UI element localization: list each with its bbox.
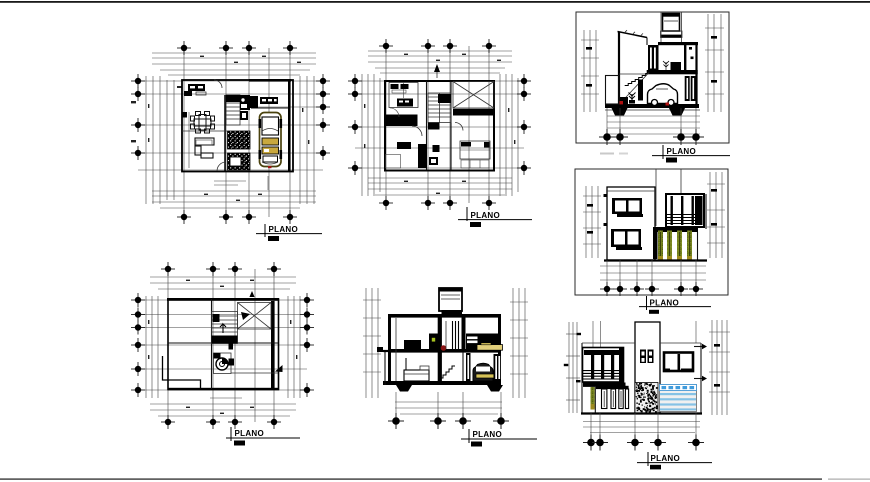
svg-text:PLANO: PLANO	[269, 225, 299, 234]
svg-text:PLANO: PLANO	[235, 429, 265, 438]
svg-text:PLANO: PLANO	[473, 430, 503, 439]
svg-text:PLANO: PLANO	[651, 454, 681, 463]
svg-text:PLANO: PLANO	[471, 211, 501, 220]
svg-text:PLANO: PLANO	[667, 147, 697, 156]
